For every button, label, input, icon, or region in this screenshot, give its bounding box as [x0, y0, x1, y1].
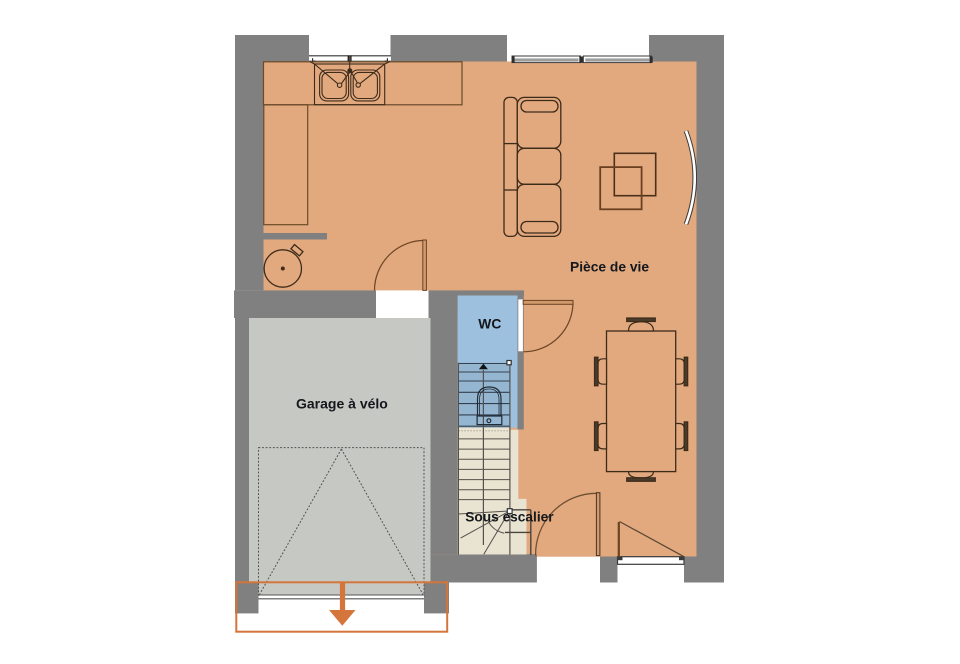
svg-text:Pièce de vie: Pièce de vie	[570, 260, 649, 275]
svg-text:Sous escalier: Sous escalier	[465, 509, 554, 524]
svg-text:Garage à vélo: Garage à vélo	[296, 396, 388, 412]
svg-text:WC: WC	[478, 316, 501, 331]
